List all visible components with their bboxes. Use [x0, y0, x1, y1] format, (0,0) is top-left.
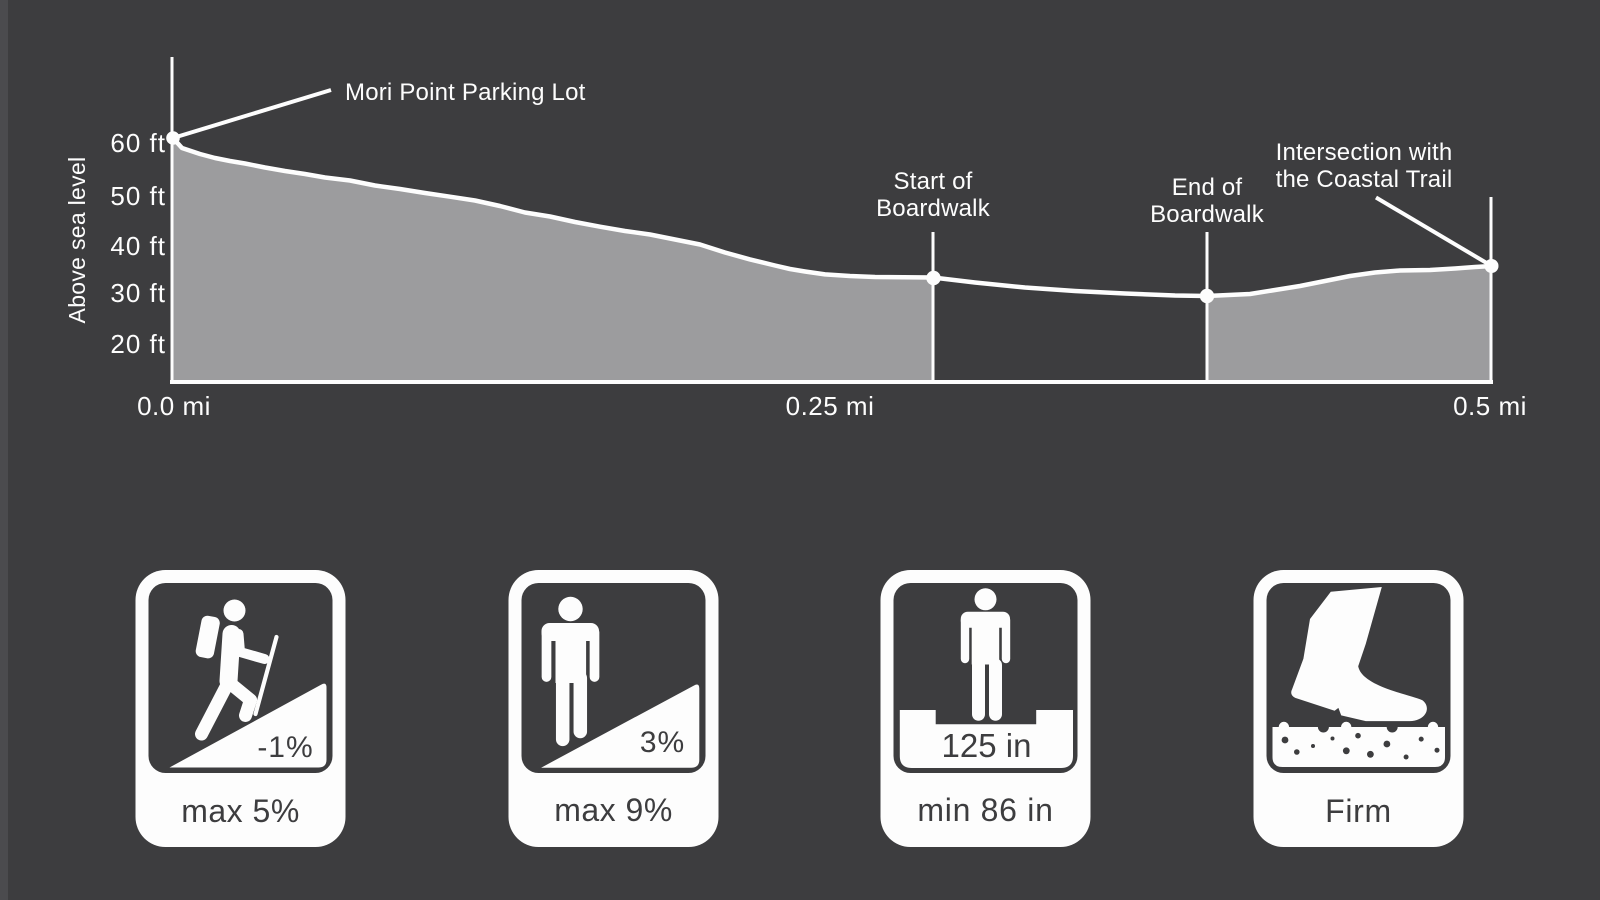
svg-text:0.5 mi: 0.5 mi — [1453, 391, 1527, 421]
svg-text:0.0 mi: 0.0 mi — [137, 391, 211, 421]
svg-text:Above sea level: Above sea level — [64, 157, 90, 324]
svg-text:60 ft: 60 ft — [110, 128, 166, 158]
svg-text:-1%: -1% — [257, 731, 313, 764]
svg-text:the Coastal Trail: the Coastal Trail — [1276, 166, 1453, 193]
svg-text:min 86 in: min 86 in — [917, 792, 1053, 828]
svg-text:Intersection with: Intersection with — [1276, 139, 1453, 166]
svg-text:Mori Point Parking Lot: Mori Point Parking Lot — [345, 79, 586, 106]
svg-text:Boardwalk: Boardwalk — [876, 195, 991, 222]
svg-text:max 5%: max 5% — [181, 793, 300, 829]
svg-text:40 ft: 40 ft — [110, 231, 166, 261]
svg-text:3%: 3% — [640, 726, 685, 759]
svg-text:max 9%: max 9% — [554, 792, 673, 828]
svg-text:50 ft: 50 ft — [110, 181, 166, 211]
svg-text:Firm: Firm — [1325, 793, 1392, 829]
svg-text:30 ft: 30 ft — [110, 278, 166, 308]
svg-text:Start of: Start of — [894, 168, 973, 195]
svg-text:125 in: 125 in — [942, 727, 1032, 764]
svg-text:20 ft: 20 ft — [110, 329, 166, 359]
svg-text:Boardwalk: Boardwalk — [1150, 201, 1265, 228]
svg-text:0.25 mi: 0.25 mi — [786, 391, 875, 421]
svg-text:End of: End of — [1172, 174, 1243, 201]
